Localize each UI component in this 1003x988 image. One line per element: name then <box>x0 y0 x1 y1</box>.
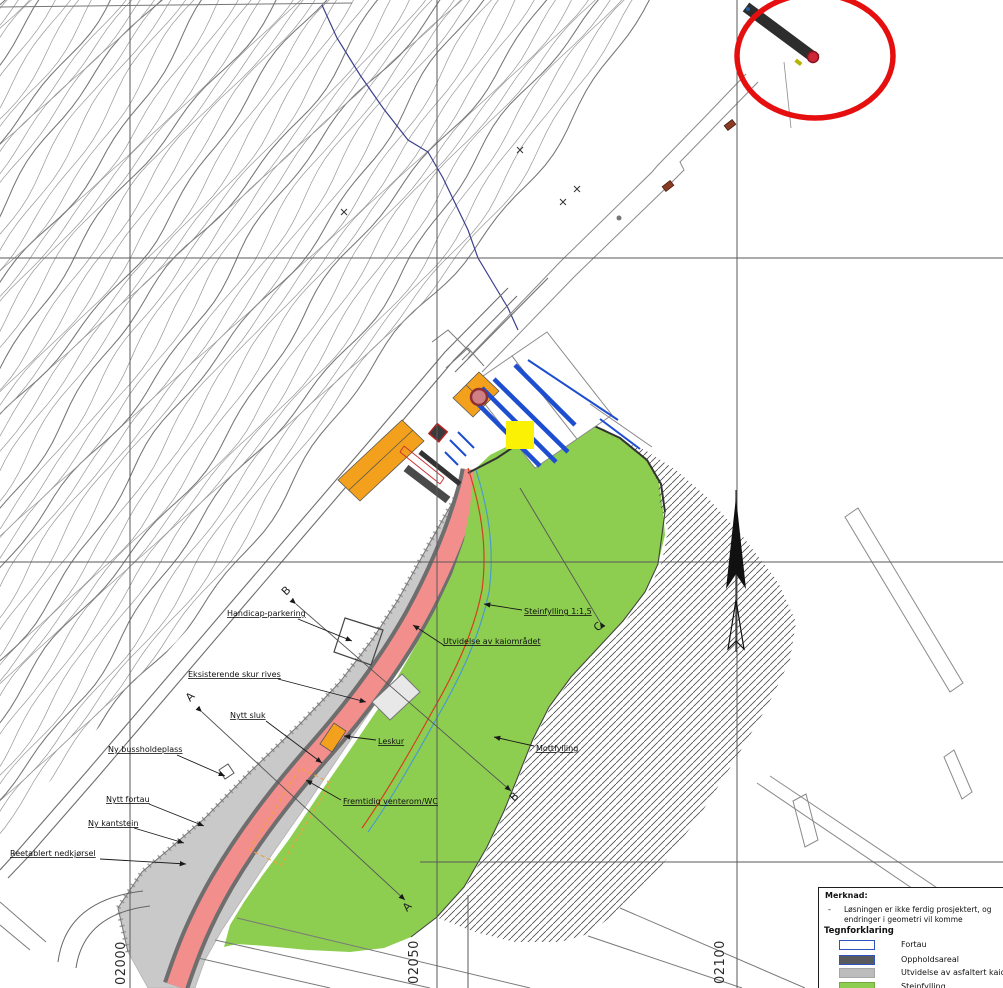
legend-note-line1: Løsningen er ikke ferdig prosjektert, og <box>844 905 991 914</box>
legend-swatch-fortau <box>839 940 875 950</box>
site-plan-drawing: Handicap-parkering Eksisterende skur riv… <box>0 0 1003 988</box>
feature-label-nytt-sluk: Nytt sluk <box>230 711 266 720</box>
feature-label-bussholdeplass: Ny bussholdeplass <box>108 745 182 754</box>
pier-head-fender <box>794 59 802 66</box>
sluk-structure <box>429 424 447 442</box>
feature-label-steinfylling: Steinfylling 1:1,5 <box>524 607 592 616</box>
feature-label-nedkjorsel: Reetablert nedkjørsel <box>10 849 96 858</box>
survey-dot <box>617 216 622 221</box>
legend-item-oppholdsareal: Oppholdsareal <box>819 954 1003 968</box>
legend-note-line2: endringer i geometri vil komme <box>844 915 963 924</box>
feature-label-mottfylling: Mottfylling <box>536 744 578 753</box>
manhole-marker <box>471 389 487 405</box>
feature-label-nytt-fortau: Nytt fortau <box>106 795 150 804</box>
north-label: N <box>731 560 741 576</box>
legend-label-utvidelse: Utvidelse av asfaltert kaiområ <box>901 968 1003 977</box>
pier-head-marker <box>808 52 819 63</box>
legend-note-bullet: - <box>828 905 831 914</box>
legend-note-title: Merknad: <box>825 891 868 900</box>
grid-label-02050: 02050 <box>407 940 422 984</box>
legend-label-steinfylling: Steinfylling <box>901 982 946 988</box>
feature-label-utvidelse-kaiomradet: Utvidelse av kaiområdet <box>443 636 541 646</box>
legend-item-fortau: Fortau <box>819 939 1003 953</box>
legend-item-utvidelse: Utvidelse av asfaltert kaiområ <box>819 967 1003 981</box>
legend-panel: Merknad: - Løsningen er ikke ferdig pros… <box>818 887 1003 988</box>
feature-label-venterom: Fremtidig venterom/WC <box>343 797 438 806</box>
feature-label-eksisterende-skur: Eksisterende skur rives <box>188 670 281 679</box>
legend-label-fortau: Fortau <box>901 940 927 949</box>
ramp-structure <box>406 468 448 500</box>
grid-label-02100: 02100 <box>713 940 728 984</box>
legend-item-steinfylling: Steinfylling <box>819 981 1003 988</box>
survey-cross-markers <box>341 147 580 215</box>
feature-label-ny-kantstein: Ny kantstein <box>88 819 138 828</box>
legend-swatch-utvidelse <box>839 968 875 978</box>
legend-label-oppholdsareal: Oppholdsareal <box>901 955 959 964</box>
pier-head-point <box>746 7 750 11</box>
highlight-square-annotation <box>506 421 534 449</box>
grid-label-02000: 02000 <box>114 941 129 985</box>
map-canvas: Handicap-parkering Eksisterende skur riv… <box>0 0 1003 988</box>
floating-docks <box>757 508 1003 950</box>
legend-swatch-oppholdsareal <box>839 955 875 965</box>
feature-label-handicap-parkering: Handicap-parkering <box>227 609 306 618</box>
bus-stop-marker <box>219 764 234 779</box>
feature-label-leskur: Leskur <box>378 737 405 746</box>
legend-swatch-steinfylling <box>839 982 875 988</box>
legend-title: Tegnforklaring <box>824 926 894 936</box>
section-letter-b1: B <box>279 584 294 599</box>
section-letter-a1: A <box>183 689 198 704</box>
